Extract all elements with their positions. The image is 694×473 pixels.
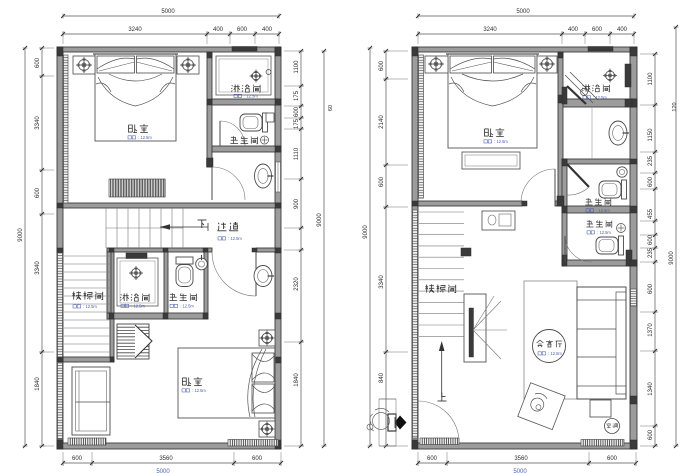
svg-text:600: 600 (648, 234, 654, 245)
svg-text:: 12.5m: : 12.5m (596, 208, 610, 213)
svg-text:120: 120 (672, 102, 678, 111)
svg-text:600: 600 (607, 456, 618, 462)
svg-text:2140: 2140 (379, 115, 385, 129)
svg-text:1840: 1840 (35, 377, 41, 391)
svg-text:600: 600 (592, 27, 603, 33)
svg-text:1100: 1100 (648, 72, 654, 86)
svg-text:9000: 9000 (669, 251, 675, 265)
svg-text:400: 400 (617, 27, 628, 33)
svg-text:: 12.5m: : 12.5m (593, 95, 607, 100)
svg-text:400: 400 (262, 27, 273, 33)
svg-text:3240: 3240 (483, 27, 497, 33)
svg-text:: 12.5m: : 12.5m (548, 351, 562, 356)
svg-text:600: 600 (427, 456, 438, 462)
svg-text:3340: 3340 (35, 261, 41, 275)
svg-text:600: 600 (237, 27, 248, 33)
svg-text:400: 400 (213, 27, 224, 33)
svg-text:900: 900 (294, 198, 300, 209)
svg-text:600: 600 (379, 60, 385, 71)
svg-text:9000: 9000 (317, 213, 323, 227)
svg-text:: 12.5m: : 12.5m (244, 94, 258, 99)
svg-text:: 12.5m: : 12.5m (597, 230, 611, 235)
svg-text:600: 600 (35, 187, 41, 198)
svg-text:: 12.5m: : 12.5m (180, 304, 194, 309)
svg-text:5000: 5000 (161, 9, 175, 15)
svg-text:2320: 2320 (294, 277, 300, 291)
svg-text:9000: 9000 (18, 228, 24, 242)
svg-text:600: 600 (35, 57, 41, 68)
svg-text:: 12.5m: : 12.5m (131, 304, 145, 309)
svg-text:1110: 1110 (294, 147, 300, 160)
svg-text:1100: 1100 (294, 60, 300, 74)
svg-text:600: 600 (379, 176, 385, 187)
svg-text:5000: 5000 (516, 9, 530, 15)
svg-text:5000: 5000 (156, 469, 170, 473)
svg-text:600: 600 (294, 106, 300, 117)
svg-text:400: 400 (568, 27, 579, 33)
svg-text:1370: 1370 (648, 323, 654, 337)
svg-text:: 12.5m: : 12.5m (138, 135, 152, 140)
svg-text:175: 175 (294, 118, 300, 129)
svg-text:455: 455 (648, 208, 654, 219)
svg-text:3560: 3560 (159, 456, 173, 462)
svg-text:1840: 1840 (294, 373, 300, 387)
svg-text:: 12.5m: : 12.5m (228, 236, 242, 241)
svg-text:3560: 3560 (514, 456, 528, 462)
svg-text:840: 840 (379, 372, 385, 383)
svg-text:9000: 9000 (363, 225, 369, 239)
svg-text:3340: 3340 (35, 116, 41, 130)
svg-text:600: 600 (648, 176, 654, 187)
svg-text:3240: 3240 (128, 27, 142, 33)
svg-text:235: 235 (648, 247, 654, 258)
svg-text:600: 600 (252, 456, 263, 462)
svg-text:235: 235 (648, 155, 654, 166)
svg-text:1340: 1340 (648, 382, 654, 396)
svg-text:175: 175 (294, 90, 300, 101)
svg-text:5000: 5000 (513, 469, 527, 473)
svg-text:600: 600 (648, 283, 654, 294)
svg-text:: 12.5m: : 12.5m (494, 139, 508, 144)
svg-text:3340: 3340 (379, 275, 385, 289)
svg-text:: 12.5m: : 12.5m (83, 304, 97, 309)
svg-text:600: 600 (648, 429, 654, 440)
svg-text:600: 600 (72, 456, 83, 462)
svg-text:1150: 1150 (648, 128, 654, 142)
svg-text:: 12.5m: : 12.5m (192, 388, 206, 393)
svg-text:60: 60 (328, 105, 334, 111)
